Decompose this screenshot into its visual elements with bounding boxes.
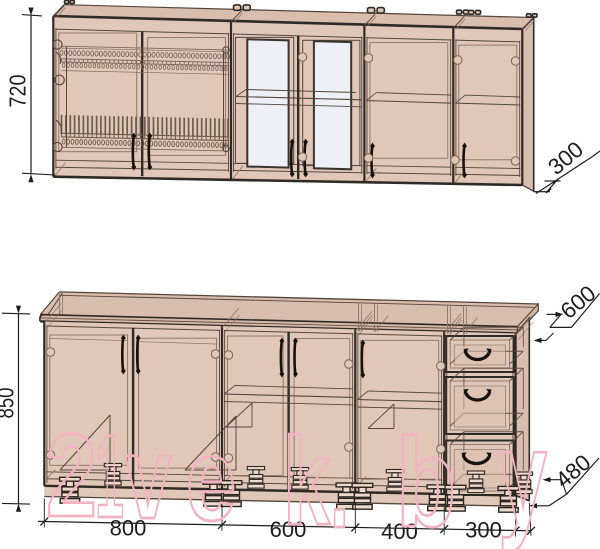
svg-text:y: y [498,403,547,549]
svg-text:b: b [396,412,456,549]
svg-text:k: k [283,413,331,549]
svg-text:850: 850 [0,388,19,419]
svg-text:1: 1 [95,411,124,543]
svg-text:720: 720 [5,75,31,108]
svg-text:300: 300 [465,518,502,543]
svg-text:.: . [330,421,349,549]
svg-text:e: e [186,414,236,546]
svg-text:v: v [125,412,171,544]
svg-text:2: 2 [46,410,97,542]
